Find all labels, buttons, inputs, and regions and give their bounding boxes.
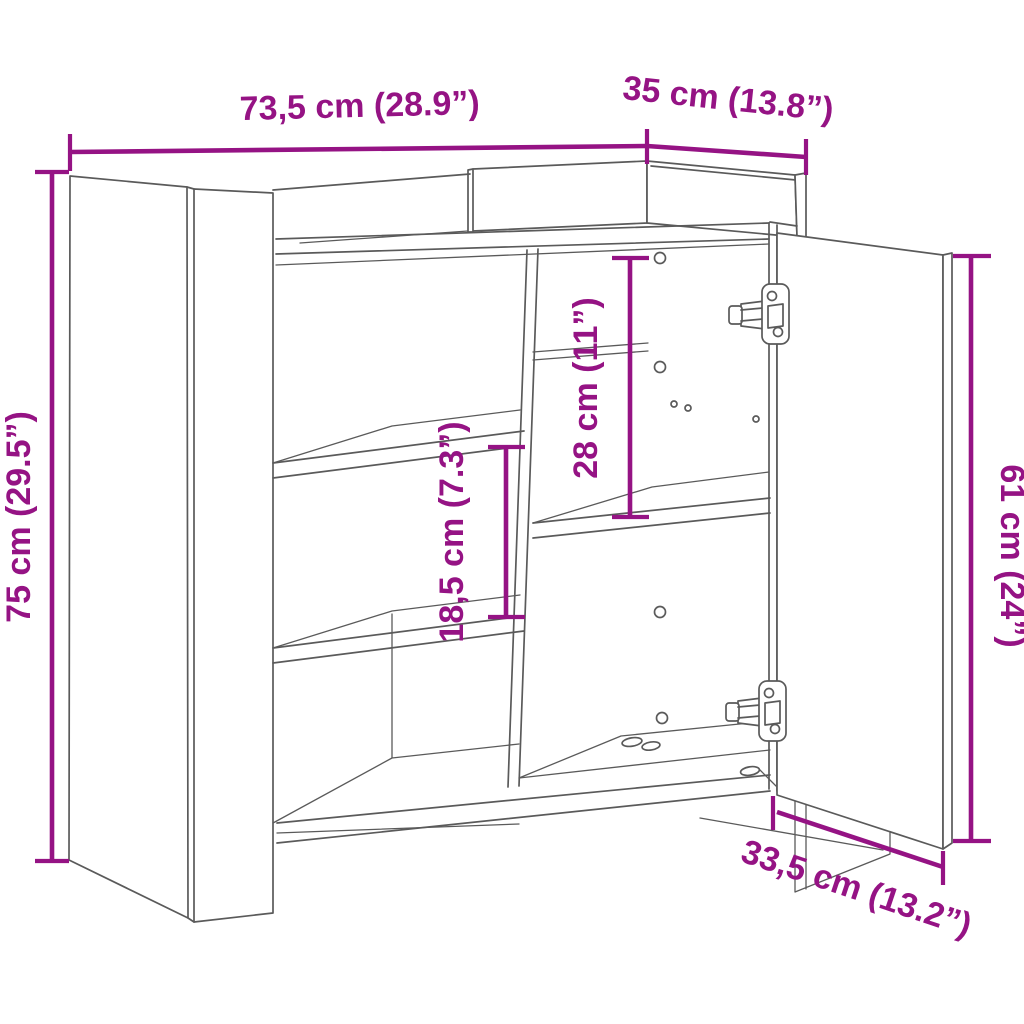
right-compartment-shelf: [533, 472, 770, 538]
sideboard-line-drawing: 73,5 cm (28.9”) 35 cm (13.8”) 75 cm (29.…: [0, 0, 1024, 1024]
dimension-compartment-height-label: 28 cm (11”): [567, 297, 605, 478]
top-back-rail: [468, 161, 806, 242]
left-side-panel: [69, 176, 273, 922]
dimension-shelf-spacing: 18,5 cm (7.3”): [433, 421, 525, 642]
dimension-width: 73,5 cm (28.9”): [70, 84, 647, 171]
hinge-bottom: [726, 681, 786, 741]
dimension-door-width-label: 33,5 cm (13.2”): [737, 832, 977, 944]
dimension-door-height: 61 cm (24”): [953, 256, 1024, 841]
dimension-width-label: 73,5 cm (28.9”): [239, 84, 480, 128]
dimension-height: 75 cm (29.5”): [0, 172, 69, 861]
bottom-board: [277, 721, 776, 843]
left-compartment-shelves: [273, 410, 524, 823]
dimension-door-height-label: 61 cm (24”): [993, 464, 1024, 647]
dimension-depth: 35 cm (13.8”): [621, 69, 835, 175]
open-door: [777, 233, 952, 849]
center-divider: [508, 249, 538, 787]
hinge-top: [729, 284, 789, 344]
dimension-height-label: 75 cm (29.5”): [0, 411, 38, 623]
dimension-depth-label: 35 cm (13.8”): [621, 69, 835, 129]
cabinet-drawing: [69, 161, 952, 922]
product-dimension-diagram: 73,5 cm (28.9”) 35 cm (13.8”) 75 cm (29.…: [0, 0, 1024, 1024]
dimension-compartment-height: 28 cm (11”): [567, 258, 649, 517]
dimension-shelf-spacing-label: 18,5 cm (7.3”): [433, 421, 471, 642]
